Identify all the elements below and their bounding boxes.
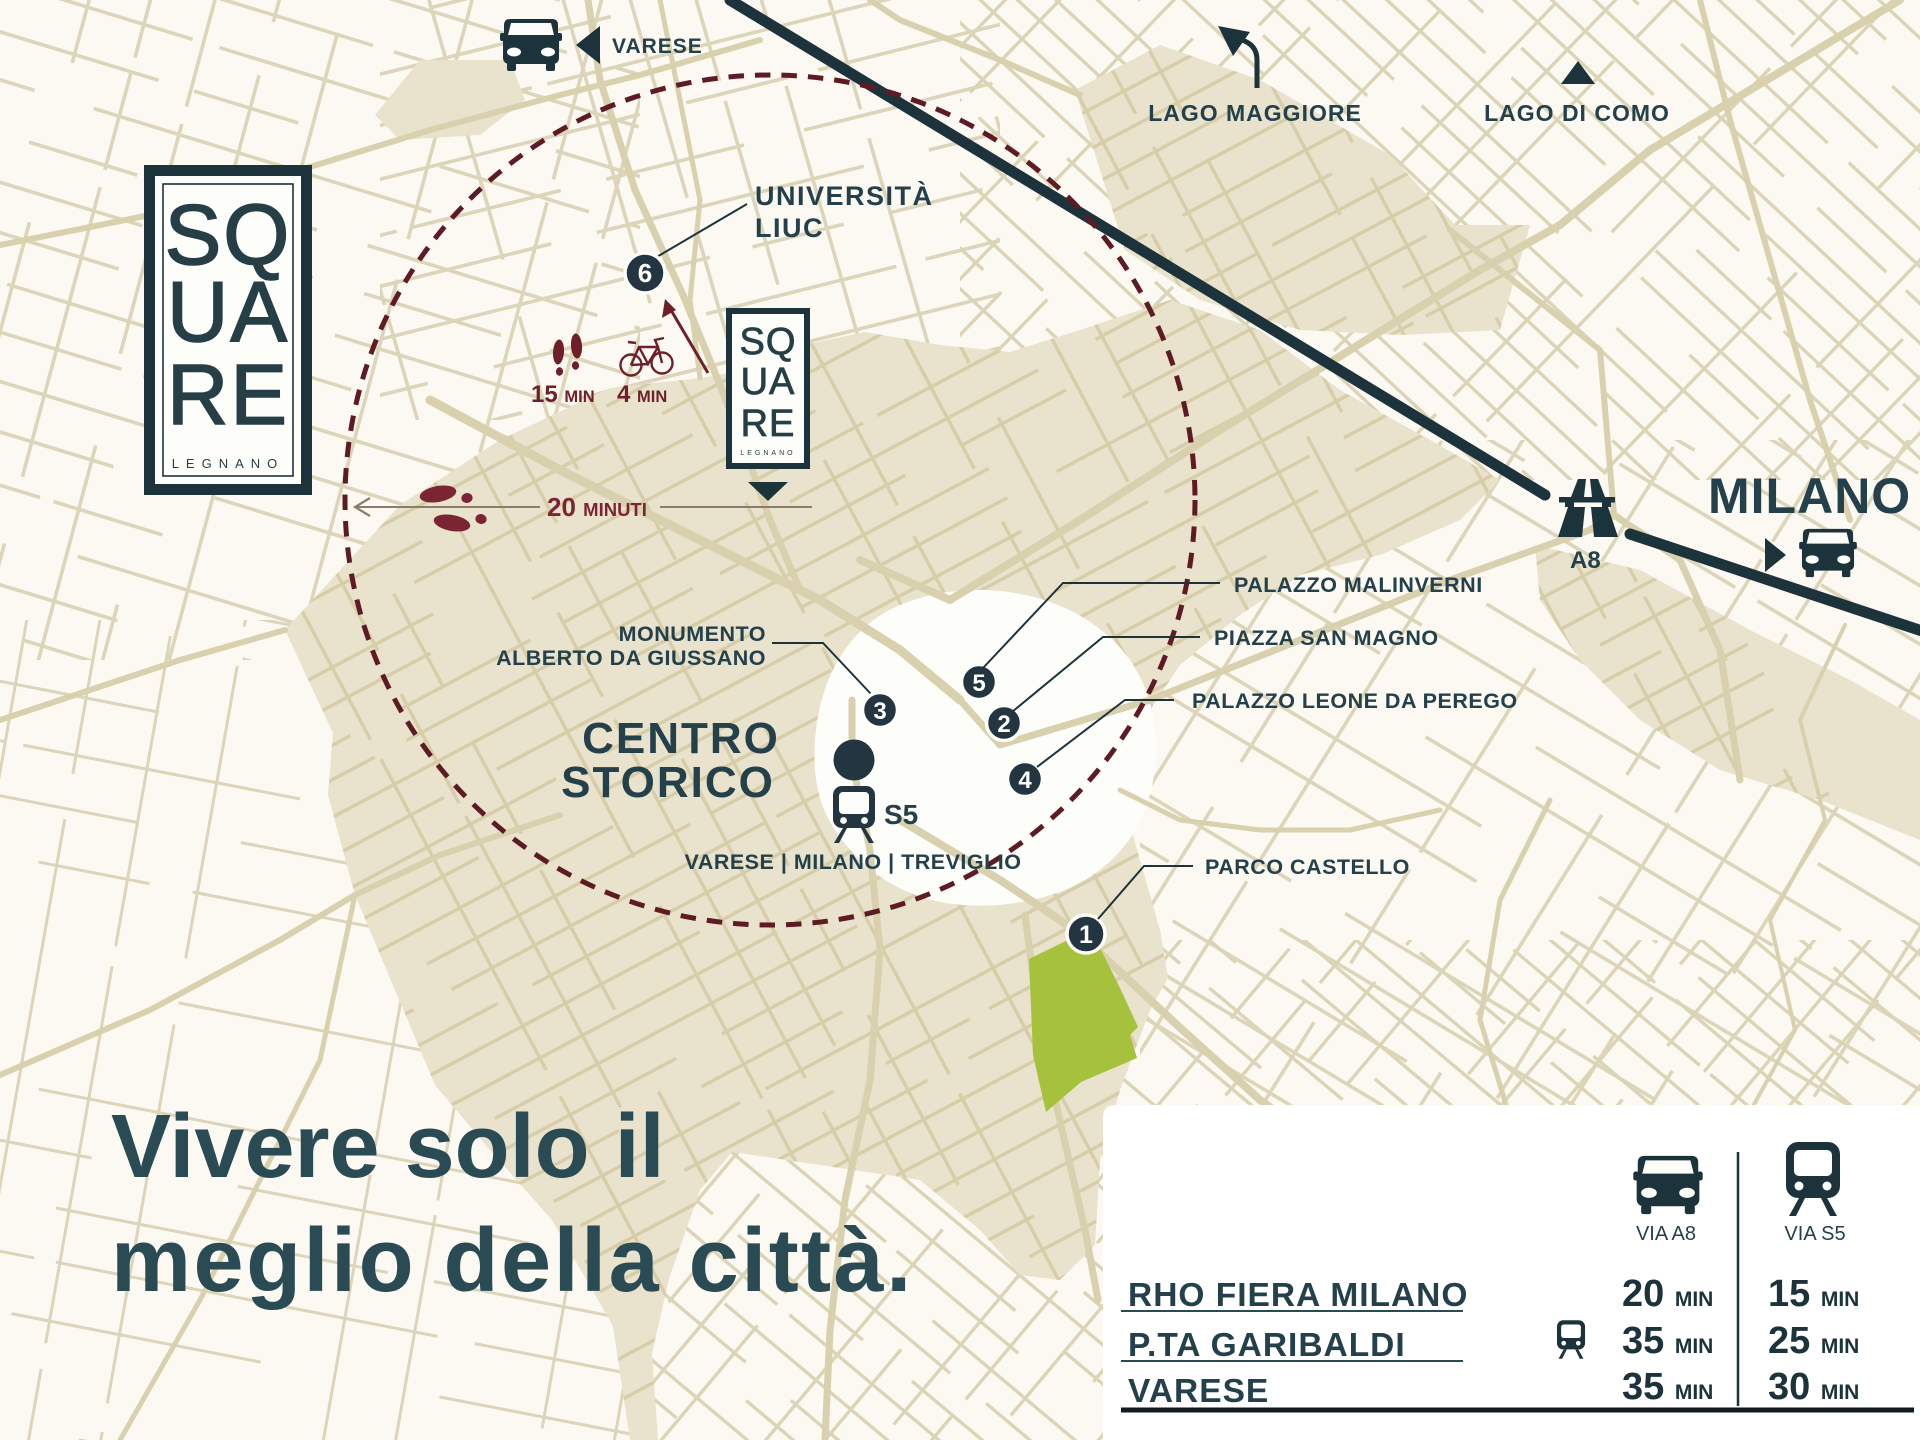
svg-text:LIUC: LIUC <box>755 213 824 243</box>
svg-text:LEGNANO: LEGNANO <box>740 450 795 457</box>
svg-text:CENTRO: CENTRO <box>582 714 780 763</box>
svg-text:LAGO MAGGIORE: LAGO MAGGIORE <box>1148 100 1362 126</box>
svg-text:STORICO: STORICO <box>561 758 775 807</box>
svg-text:meglio della città.: meglio della città. <box>111 1211 914 1311</box>
svg-text:LEGNANO: LEGNANO <box>172 456 285 471</box>
svg-text:SQ: SQ <box>740 321 797 363</box>
svg-text:2: 2 <box>997 711 1010 738</box>
svg-text:VARESE: VARESE <box>612 35 703 58</box>
svg-text:MONUMENTO: MONUMENTO <box>619 622 766 646</box>
svg-text:VARESE | MILANO | TREVIGLIO: VARESE | MILANO | TREVIGLIO <box>685 850 1022 874</box>
svg-text:A8: A8 <box>1570 547 1601 574</box>
svg-text:RE: RE <box>167 348 289 443</box>
svg-text:UA: UA <box>167 265 289 360</box>
svg-text:UNIVERSITÀ: UNIVERSITÀ <box>755 180 934 211</box>
svg-text:PALAZZO LEONE DA PEREGO: PALAZZO LEONE DA PEREGO <box>1192 689 1518 713</box>
svg-text:5: 5 <box>972 670 985 697</box>
svg-text:VARESE: VARESE <box>1128 1373 1269 1410</box>
svg-text:UA: UA <box>741 361 796 403</box>
svg-text:1: 1 <box>1079 921 1093 949</box>
svg-text:P.TA GARIBALDI: P.TA GARIBALDI <box>1128 1327 1406 1364</box>
svg-text:PALAZZO MALINVERNI: PALAZZO MALINVERNI <box>1234 573 1483 597</box>
svg-text:VIA S5: VIA S5 <box>1784 1223 1845 1245</box>
svg-text:RE: RE <box>741 403 796 445</box>
svg-text:PIAZZA SAN MAGNO: PIAZZA SAN MAGNO <box>1214 626 1439 650</box>
svg-text:4: 4 <box>1018 767 1032 794</box>
svg-text:RHO FIERA MILANO: RHO FIERA MILANO <box>1128 1277 1468 1314</box>
svg-text:VIA A8: VIA A8 <box>1636 1223 1696 1245</box>
svg-text:S5: S5 <box>884 799 918 830</box>
svg-text:Vivere solo il: Vivere solo il <box>111 1097 665 1197</box>
svg-text:PARCO CASTELLO: PARCO CASTELLO <box>1205 855 1410 879</box>
svg-text:ALBERTO DA GIUSSANO: ALBERTO DA GIUSSANO <box>496 646 766 670</box>
svg-text:LAGO DI COMO: LAGO DI COMO <box>1484 100 1670 126</box>
svg-text:3: 3 <box>873 698 886 725</box>
svg-text:MILANO: MILANO <box>1708 468 1911 524</box>
svg-text:6: 6 <box>638 258 652 288</box>
